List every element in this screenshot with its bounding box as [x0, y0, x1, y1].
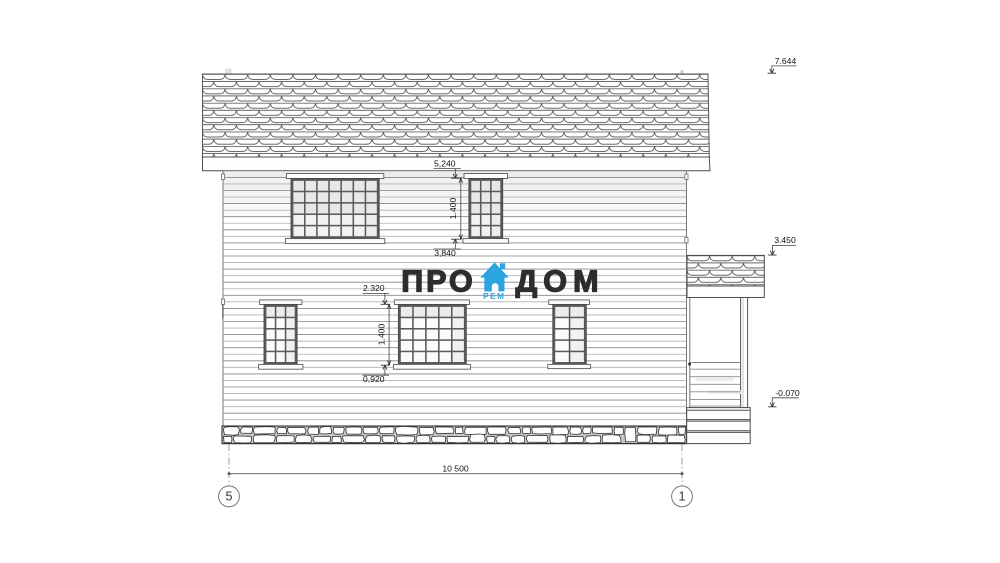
svg-text:2.320: 2.320: [363, 283, 385, 293]
svg-text:5: 5: [226, 490, 233, 504]
svg-text:10 500: 10 500: [442, 463, 469, 473]
svg-text:РЕМ: РЕМ: [483, 292, 505, 301]
svg-text:5,240: 5,240: [434, 158, 456, 168]
svg-text:3.450: 3.450: [774, 235, 796, 245]
svg-text:7.644: 7.644: [775, 56, 797, 66]
svg-text:1.400: 1.400: [448, 198, 458, 220]
svg-text:ДОМ: ДОМ: [516, 265, 599, 299]
svg-text:1.400: 1.400: [377, 324, 387, 346]
svg-text:ПРО: ПРО: [401, 265, 473, 299]
svg-text:1: 1: [679, 490, 686, 504]
svg-text:-0.070: -0.070: [775, 388, 800, 398]
